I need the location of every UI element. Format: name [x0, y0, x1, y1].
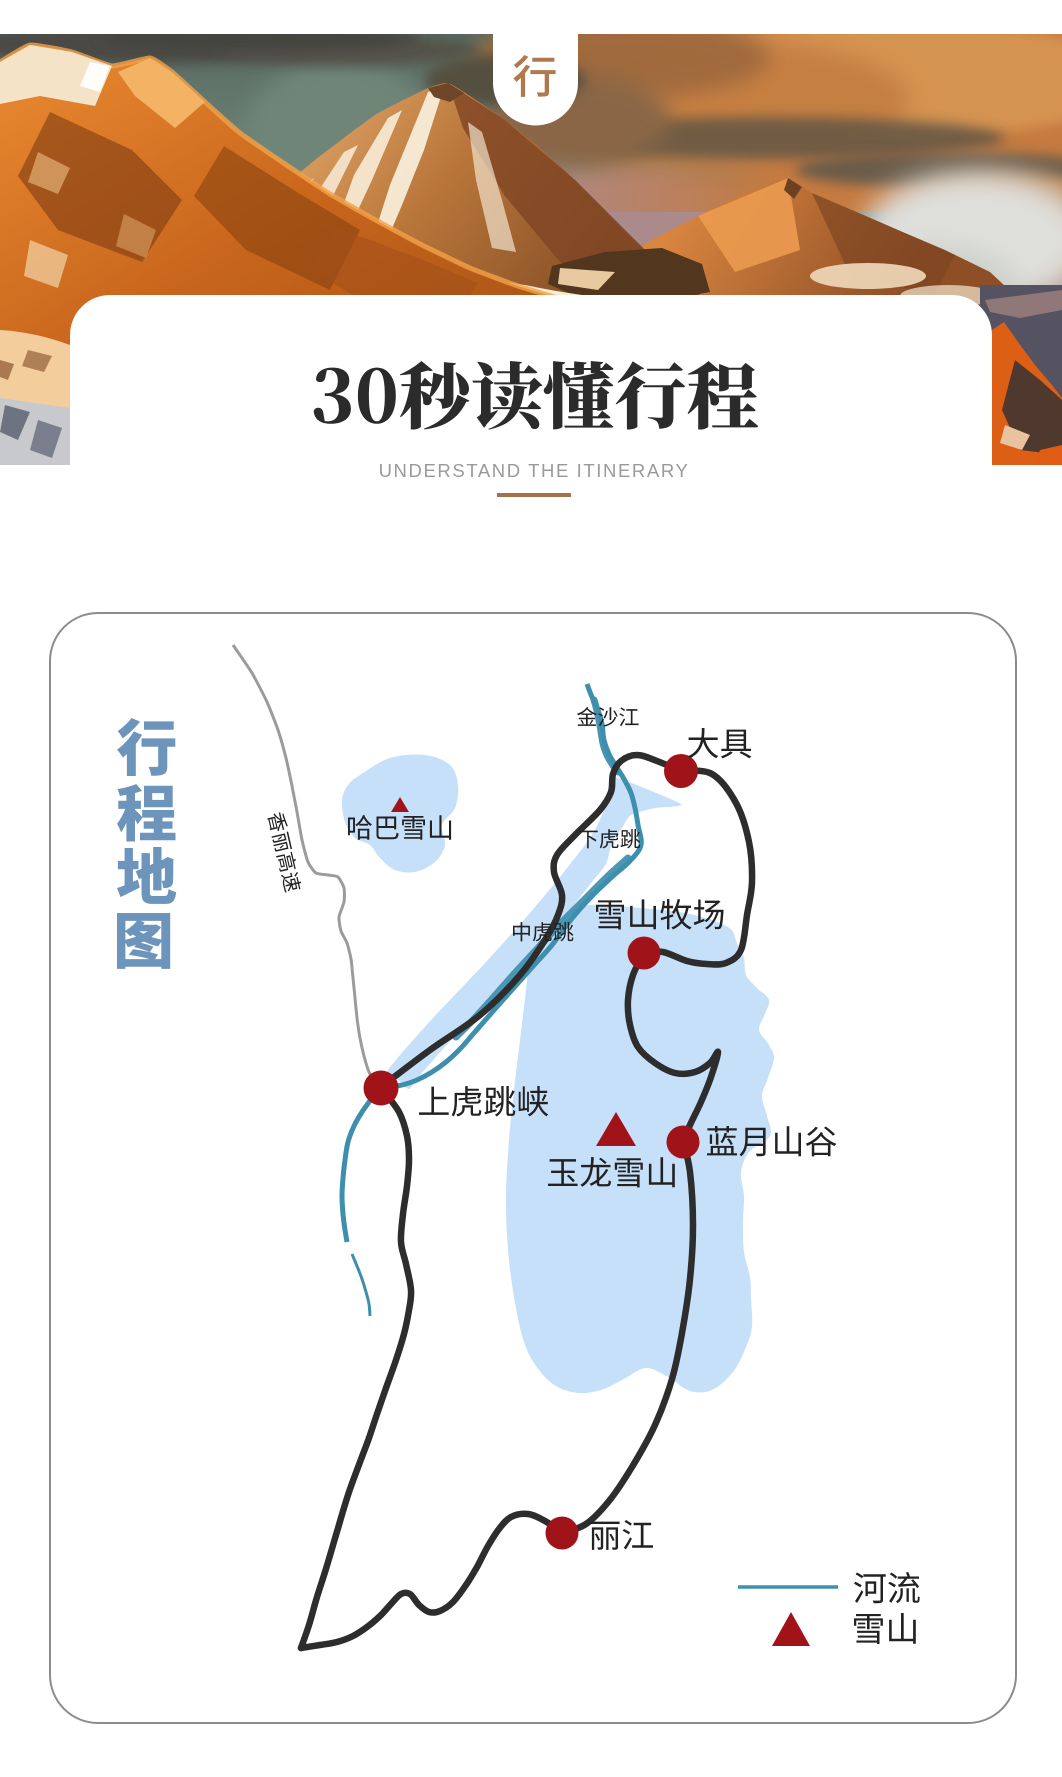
svg-text:UNDERSTAND THE ITINERARY: UNDERSTAND THE ITINERARY [379, 460, 690, 481]
